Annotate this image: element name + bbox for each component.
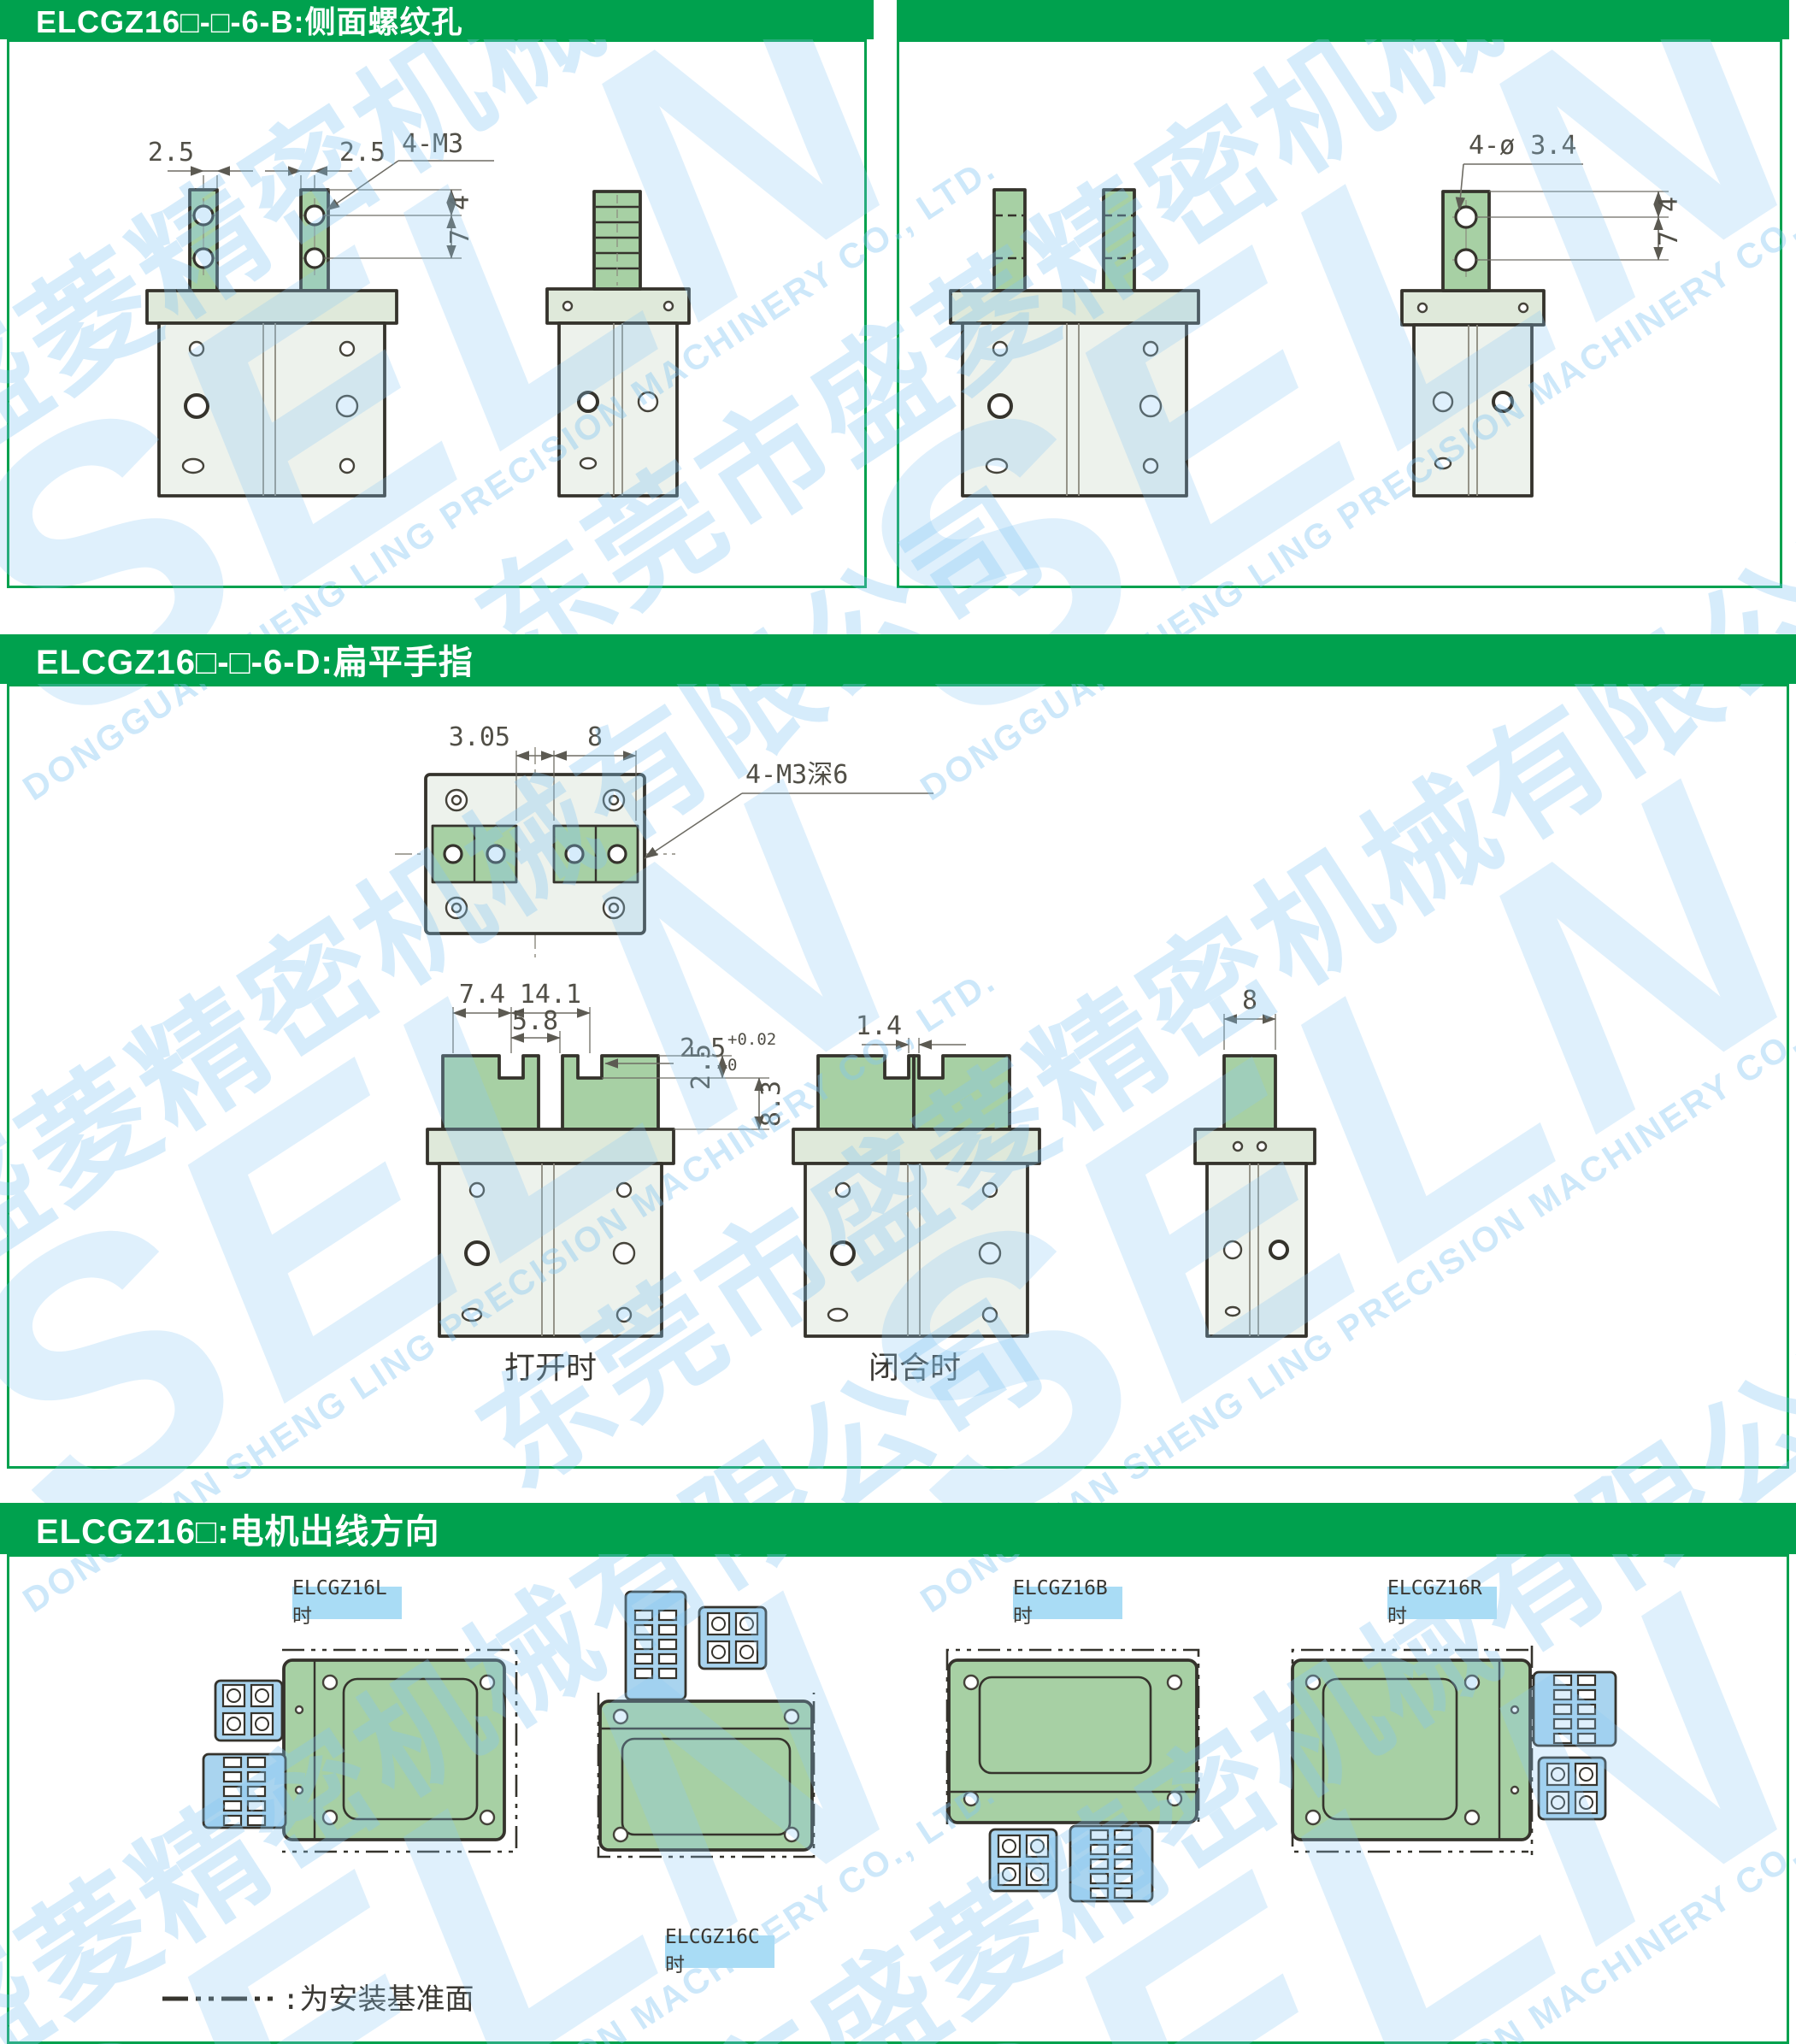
thread-callout: 4-M3 <box>402 129 463 159</box>
variant-l-drawing <box>203 1650 516 1852</box>
section-dir-title: ELCGZ16□:电机出线方向 <box>36 1504 440 1553</box>
dim-5p8: 5.8 <box>512 1006 558 1036</box>
gripper-front-view-threaded <box>147 190 397 496</box>
section-b-left-drawing: 2.5 2.5 4-M3 4 7 <box>7 39 867 588</box>
dim-3p05: 3.05 <box>449 722 510 752</box>
dim-v4: 4 <box>445 195 475 210</box>
variant-c-drawing <box>598 1592 814 1857</box>
section-dir-header: ELCGZ16□:电机出线方向 <box>0 1503 1796 1554</box>
dim-2p5-left: 2.5 <box>148 138 194 168</box>
side-view-dimensions: 4-ø 3.4 4 7 <box>1459 131 1684 260</box>
section-b-right-drawing: 4-ø 3.4 4 7 <box>897 39 1782 588</box>
dim-v2p5: 2.5 <box>686 1044 716 1090</box>
dim-1p4: 1.4 <box>856 1011 902 1041</box>
section-b-right-header-bar <box>897 0 1789 39</box>
dim-8: 8 <box>587 722 603 752</box>
section-d-title: ELCGZ16□-□-6-D:扁平手指 <box>36 634 474 684</box>
dim-8-side: 8 <box>1242 986 1257 1016</box>
open-view <box>427 1056 674 1336</box>
top-view <box>395 747 675 961</box>
thread-depth-callout: 4-M3深6 <box>745 760 848 790</box>
badge-elcgz16b: ELCGZ16B时 <box>1013 1587 1122 1619</box>
dim-v7: 7 <box>445 229 475 244</box>
section-d-drawing: 3.05 8 4-M3深6 7.4 14.1 5.8 2.5 <box>7 684 1789 1469</box>
hole-callout: 4-ø 3.4 <box>1469 131 1576 161</box>
reference-note: :为安装基准面 <box>282 1982 474 2017</box>
dim-tol-lower: 0 <box>727 1056 737 1075</box>
badge-elcgz16r: ELCGZ16R时 <box>1387 1587 1497 1619</box>
badge-b-label: ELCGZ16B时 <box>1013 1577 1122 1629</box>
badge-elcgz16c: ELCGZ16C时 <box>665 1935 774 1968</box>
section-dir-drawing: :为安装基准面 <box>7 1554 1789 2044</box>
dim-v8p3: 8.3 <box>757 1081 786 1127</box>
dim-14p1: 14.1 <box>520 980 581 1010</box>
dim-v7: 7 <box>1654 231 1684 246</box>
dim-7p4: 7.4 <box>459 980 505 1010</box>
dim-tol-upper: +0.02 <box>727 1030 776 1049</box>
badge-l-label: ELCGZ16L时 <box>292 1577 402 1629</box>
connector-grid-right <box>1534 1672 1616 1746</box>
badge-c-label: ELCGZ16C时 <box>665 1926 774 1977</box>
mounting-reference-legend: :为安装基准面 <box>162 1982 474 2017</box>
variant-b-drawing <box>947 1650 1198 1901</box>
section-d-header: ELCGZ16□-□-6-D:扁平手指 <box>0 634 1796 684</box>
dim-v4: 4 <box>1654 197 1684 212</box>
side-view: 8 <box>1195 986 1315 1336</box>
closed-view <box>793 1056 1039 1336</box>
badge-r-label: ELCGZ16R时 <box>1387 1577 1497 1629</box>
gripper-side-view-threaded <box>547 191 689 496</box>
connector-grid-bottom <box>1070 1826 1152 1901</box>
section-b-title: ELCGZ16□-□-6-B:侧面螺纹孔 <box>36 0 463 42</box>
catalog-page: ELCGZ16□-□-6-B:侧面螺纹孔 ELCGZ16□-□-6-D:扁平手指… <box>0 0 1796 2044</box>
gripper-front-view-through <box>951 190 1198 496</box>
badge-elcgz16l: ELCGZ16L时 <box>292 1587 402 1619</box>
section-b-header: ELCGZ16□-□-6-B:侧面螺纹孔 <box>0 0 874 39</box>
gripper-side-view-through <box>1402 191 1544 496</box>
dim-2p5-right: 2.5 <box>339 138 386 168</box>
caption-open: 打开时 <box>504 1351 597 1386</box>
variant-r-drawing <box>1293 1646 1616 1855</box>
connector-grid-left <box>203 1754 286 1828</box>
caption-closed: 闭合时 <box>869 1351 961 1386</box>
